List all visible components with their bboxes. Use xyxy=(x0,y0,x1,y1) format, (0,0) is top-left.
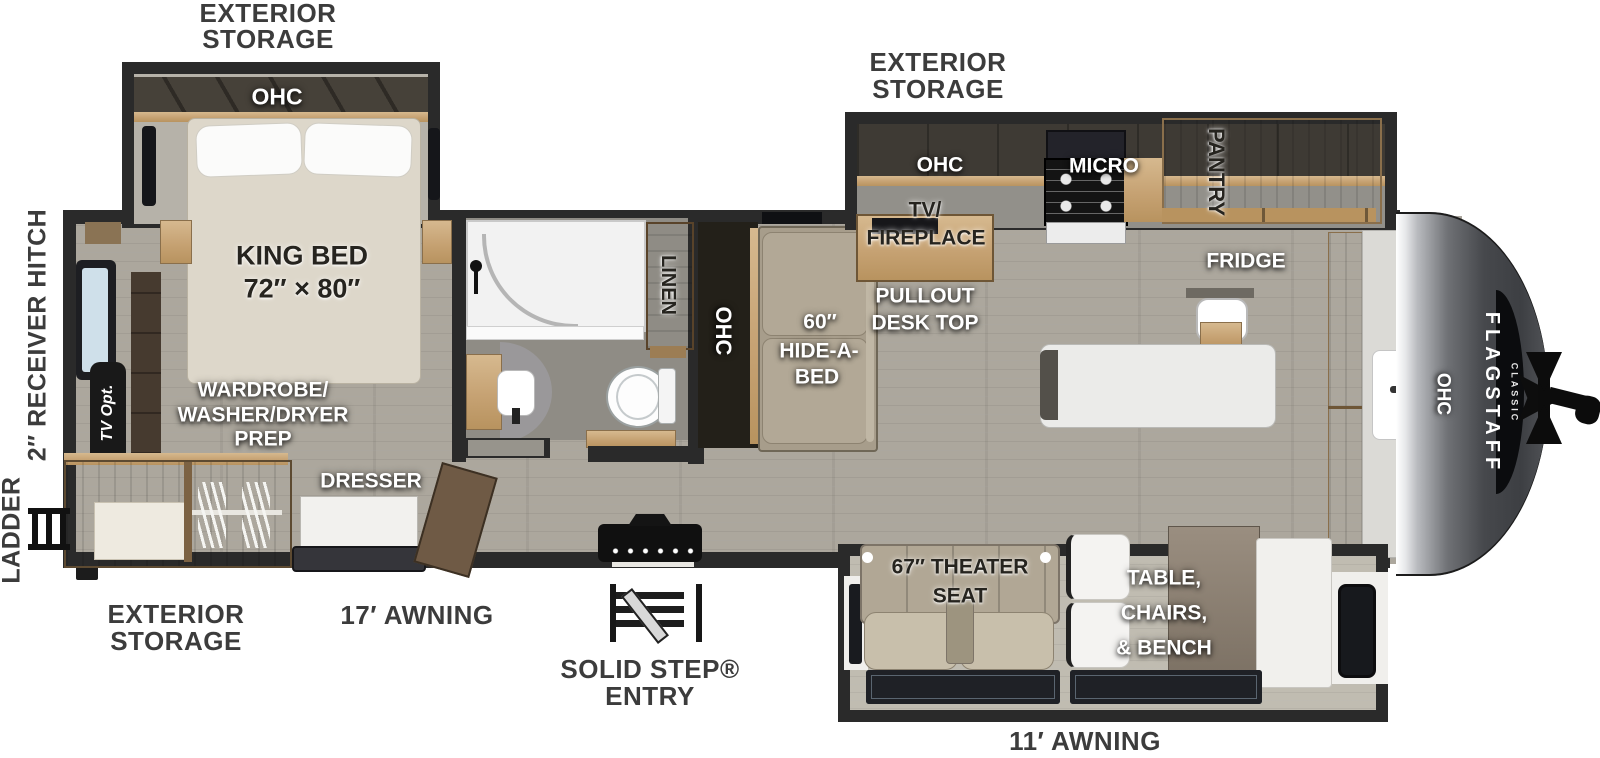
rear-bumper xyxy=(76,566,98,580)
oven-front xyxy=(1046,222,1126,244)
theater-seat-label-2: SEAT xyxy=(933,586,987,607)
dinette-label-2: CHAIRS, xyxy=(1121,603,1207,624)
hide-a-bed-label-1: 60″ xyxy=(803,312,836,333)
island-end-panel xyxy=(1040,350,1058,420)
toilet-tank xyxy=(658,368,676,424)
outside-griddle xyxy=(598,524,702,562)
ext-storage-rear-label-1: EXTERIOR xyxy=(200,0,337,26)
pullout-desk-label-2: DESK TOP xyxy=(872,313,979,334)
bathroom-left-wall xyxy=(452,216,466,462)
dresser-top-panel xyxy=(292,546,426,572)
ext-storage-rear-label-2: STORAGE xyxy=(202,26,334,52)
theater-seat-label-1: 67″ THEATER xyxy=(892,557,1029,578)
shower-threshold xyxy=(466,326,644,340)
rear-window-glass xyxy=(82,268,108,372)
wardrobe-divider xyxy=(184,462,192,562)
griddle-dots xyxy=(608,546,694,556)
tv-fireplace-label-2: FIREPLACE xyxy=(866,228,985,249)
awning-17-label: 17′ AWNING xyxy=(340,602,493,628)
slide-corner-cabinet xyxy=(85,222,121,244)
dinette-label-1: TABLE, xyxy=(1127,568,1201,589)
wardrobe-label-2: WASHER/DRYER xyxy=(178,405,349,426)
receiver-hitch-label: 2″ RECEIVER HITCH xyxy=(26,209,51,461)
ladder-icon-rung-1 xyxy=(32,508,38,550)
brand-logo: FLAGSTAFF xyxy=(1482,312,1502,474)
floorplan-canvas: TV Opt. xyxy=(0,0,1600,758)
bathroom-bottom-wall-right xyxy=(588,446,692,462)
king-bed-label-2: 72″ × 80″ xyxy=(244,276,361,303)
king-slide-window-right xyxy=(428,128,440,200)
tv-opt-label: TV Opt. xyxy=(100,385,116,442)
pullout-desk-label-1: PULLOUT xyxy=(875,286,974,307)
kitchen-ohc-label: OHC xyxy=(917,155,964,176)
king-bed-label-1: KING BED xyxy=(236,243,368,270)
brand-series: CLASSIC xyxy=(1510,363,1519,424)
shower-head-arm xyxy=(474,270,478,294)
dresser-unit xyxy=(300,496,418,552)
solid-step-label-1: SOLID STEP® xyxy=(560,656,739,682)
kitchen-island xyxy=(1040,344,1276,428)
dinette-bench xyxy=(1256,538,1332,688)
cupholder-right xyxy=(1040,552,1051,563)
ext-storage-bottom-label-1: EXTERIOR xyxy=(108,601,245,627)
hangers-group-1 xyxy=(198,482,226,548)
ladder-icon-rung-3 xyxy=(60,508,66,550)
hide-a-bed-label-3: BED xyxy=(795,367,839,388)
bathroom-step xyxy=(468,440,544,456)
vanity-faucet xyxy=(512,408,520,424)
toilet-seat-ring xyxy=(616,374,660,420)
linen-closet-base xyxy=(650,346,686,358)
theater-cushion-left xyxy=(864,612,958,670)
sofa-window xyxy=(762,212,822,224)
pantry-drawers xyxy=(1162,208,1376,222)
theater-console xyxy=(946,600,974,664)
king-slide-window-left xyxy=(142,126,156,206)
ext-storage-kitchen-label-1: EXTERIOR xyxy=(870,49,1007,75)
awning-11-label: 11′ AWNING xyxy=(1009,728,1161,754)
king-ohc-label: OHC xyxy=(251,86,302,109)
pantry-label: PANTRY xyxy=(1205,128,1227,216)
slide-floor-panel-2 xyxy=(1070,670,1262,704)
fridge-and-counter-face xyxy=(1328,232,1366,558)
nightstand-left xyxy=(160,220,192,264)
solid-step-label-2: ENTRY xyxy=(605,683,695,709)
linen-label: LINEN xyxy=(658,255,678,315)
cupholder-left xyxy=(862,552,873,563)
fridge-label: FRIDGE xyxy=(1206,251,1285,272)
theater-cushion-right xyxy=(960,612,1054,670)
dinette-label-3: & BENCH xyxy=(1116,638,1212,659)
ladder-icon-rung-2 xyxy=(46,508,52,550)
nightstand-right xyxy=(422,220,452,264)
slide-window-right xyxy=(1338,584,1376,678)
front-ohc-label: OHC xyxy=(1434,373,1453,415)
micro-label: MICRO xyxy=(1069,156,1139,177)
wardrobe-bin xyxy=(94,502,188,560)
hangers-group-2 xyxy=(242,482,270,548)
dresser-label: DRESSER xyxy=(320,471,422,492)
hall-ohc-label: OHC xyxy=(712,307,734,356)
front-cap xyxy=(1396,212,1548,576)
hide-a-bed-label-2: HIDE-A- xyxy=(779,341,858,362)
island-sink-counter xyxy=(1186,288,1254,298)
king-pillow-right xyxy=(303,122,413,178)
fridge-seam xyxy=(1328,406,1364,409)
ext-storage-bottom-label-2: STORAGE xyxy=(110,628,242,654)
wardrobe-label-3: PREP xyxy=(234,429,291,450)
bedroom-wardrobe-tall xyxy=(131,272,161,454)
ladder-label: LADDER xyxy=(0,476,25,583)
ext-storage-kitchen-label-2: STORAGE xyxy=(872,76,1004,102)
slide-floor-panel-1 xyxy=(866,670,1060,704)
tv-fireplace-label-1: TV/ xyxy=(909,200,942,221)
dinette-chair-1 xyxy=(1066,534,1130,600)
king-pillow-left xyxy=(195,122,303,178)
wardrobe-label-1: WARDROBE/ xyxy=(198,380,329,401)
